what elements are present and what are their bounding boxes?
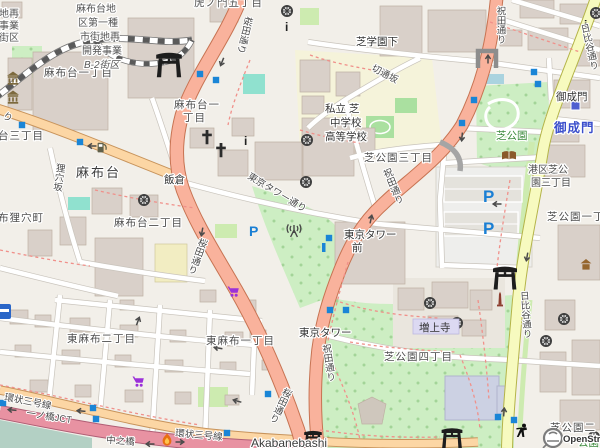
svg-text:区第一種: 区第一種 (78, 16, 118, 29)
library-book-icon (502, 151, 516, 159)
district-label-higashiazabu2: 東麻布二丁目 (67, 332, 136, 345)
buddhist-temple-icon (282, 6, 292, 16)
district-label-azabudai3: 台三丁目 (0, 129, 44, 142)
road-label-nakanohashi: 中之橋 (106, 434, 136, 448)
attribution-text: OpenStreetMap (563, 434, 600, 445)
parking-icon: P (483, 187, 494, 206)
osm-map: i i i P P P 虎ノ門五丁目 麻布台一丁目 麻布台一 丁目 台三丁目 布… (0, 0, 600, 448)
buddhist-temple-icon (541, 336, 551, 346)
buddhist-temple-icon (559, 314, 569, 324)
school-label-l2: 中学校 (330, 116, 362, 129)
district-label-azabudai2: 麻布台二丁目 (114, 216, 183, 229)
hotel-building (445, 376, 499, 420)
label-redevelopment-cut: 地再 事業 街区 (0, 7, 19, 44)
stop-label-tokyotower-mae-l2: 前 (352, 241, 363, 254)
district-label-shibakoen3: 芝公園三丁目 (364, 151, 433, 164)
svg-text:開発事業: 開発事業 (82, 44, 122, 57)
district-label-shibakoen1: 芝公園一丁 (547, 210, 600, 223)
parking-icon: P (249, 223, 258, 239)
buddhist-temple-icon (591, 8, 600, 18)
label-minatoku-l1: 港区芝公 (528, 163, 568, 176)
station-label-onarimon: 御成門 (553, 120, 595, 135)
svg-text:B-2街区: B-2街区 (84, 59, 122, 71)
svg-text:i: i (285, 20, 288, 34)
parking-icon: P (483, 219, 494, 238)
svg-text:地再: 地再 (0, 7, 19, 20)
school-label-l1: 私立 芝 (325, 102, 360, 115)
district-label-azabudai1b-l1: 麻布台一 (174, 98, 220, 111)
stop-label-tokyotower-mae-l1: 東京タワー (344, 228, 397, 241)
road-label-iwaida-dori: 祝田通り (495, 5, 507, 44)
place-label-onarimon: 御成門 (556, 90, 588, 103)
buddhist-temple-icon (425, 298, 435, 308)
road-label-akabanebashi: Akabanebashi (251, 436, 327, 448)
district-label-azabudai1b-l2: 丁目 (183, 112, 206, 124)
subway-entrance-icon (0, 304, 11, 319)
svg-text:麻布台地: 麻布台地 (76, 2, 116, 15)
district-label-mamianacho: 布狸穴町 (0, 211, 44, 224)
svg-text:市街地再: 市街地再 (80, 30, 120, 43)
place-label-tokyo-tower: 東京タワー (299, 326, 352, 339)
buddhist-temple-icon (139, 195, 149, 205)
svg-text:i: i (244, 134, 247, 148)
buddhist-temple-icon (301, 177, 311, 187)
place-label-azabudai: 麻布台 (76, 165, 121, 180)
label-minatoku-l2: 園三丁目 (531, 177, 571, 189)
svg-text:街区: 街区 (0, 31, 19, 44)
district-label-toranomon5: 虎ノ門五丁目 (194, 0, 263, 9)
district-label-higashiazabu1: 東麻布一丁目 (206, 334, 275, 347)
place-label-zojoji: 増上寺 (419, 321, 451, 334)
map-canvas[interactable]: i i i P P P 虎ノ門五丁目 麻布台一丁目 麻布台一 丁目 台三丁目 布… (0, 0, 600, 448)
park-label-shibakoen: 芝公園 (496, 129, 528, 142)
stop-label-shibagakuenshita: 芝学園下 (356, 35, 398, 48)
district-label-shibakoen4: 芝公園四丁目 (384, 350, 453, 363)
school-label-l3: 高等学校 (325, 130, 367, 143)
buddhist-temple-icon (302, 135, 312, 145)
svg-text:事業: 事業 (0, 19, 19, 32)
place-label-iikura: 飯倉 (164, 173, 185, 186)
